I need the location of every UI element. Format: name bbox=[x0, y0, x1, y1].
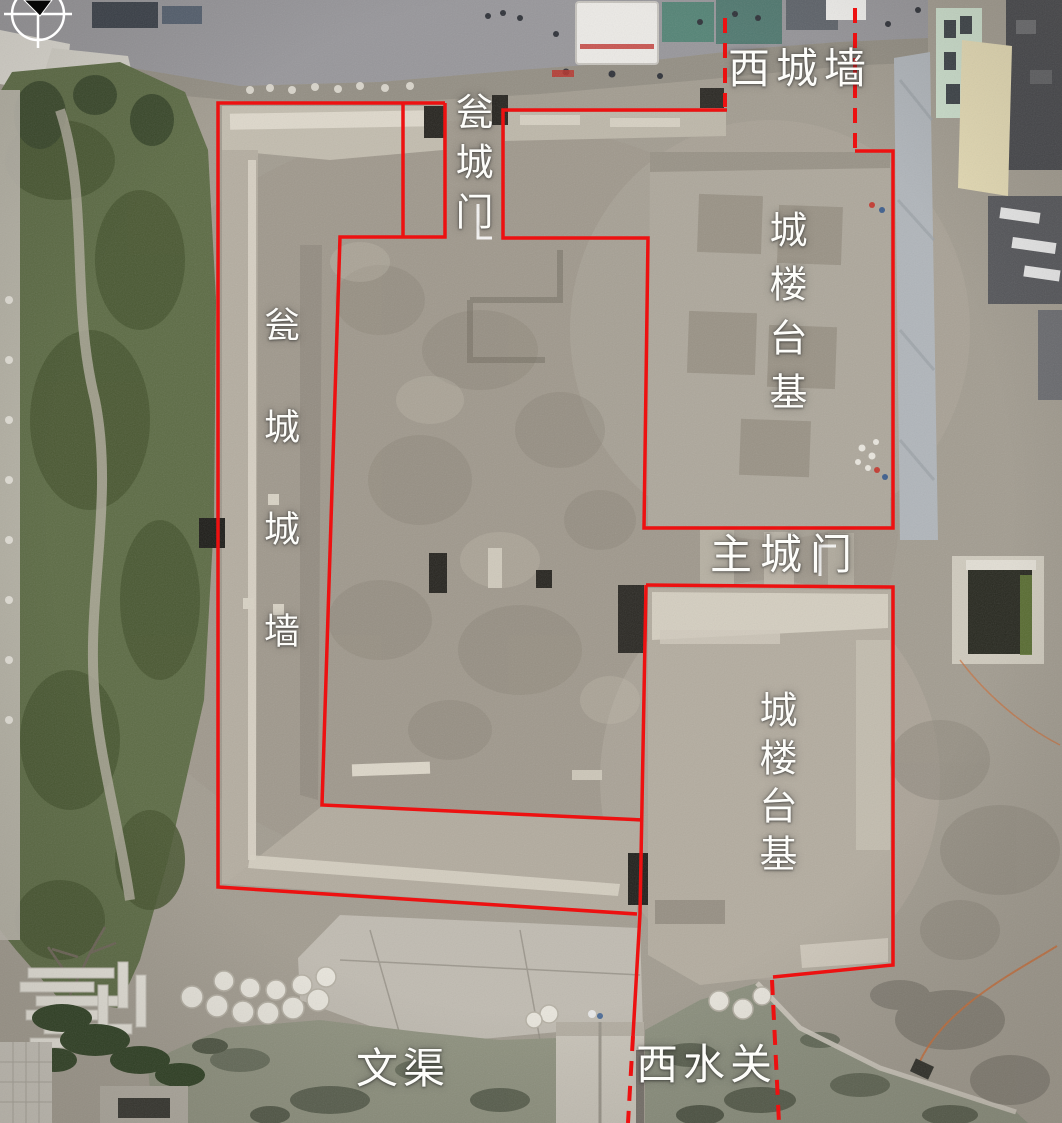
label-west-water-gate: 西水关 bbox=[636, 1044, 777, 1086]
label-gate-tower-platform-upper: 城楼台基 bbox=[766, 210, 804, 426]
label-gate-tower-platform-lower: 城楼台基 bbox=[756, 690, 794, 882]
figure-aerial-excavation: 西城墙 瓮城门 城楼台基 瓮城城墙 主城门 城楼台基 文渠 西水关 bbox=[0, 0, 1062, 1123]
aerial-photo bbox=[0, 0, 1062, 1123]
label-barbican-gate: 瓮城门 bbox=[452, 92, 490, 242]
label-wen-canal: 文渠 bbox=[356, 1048, 450, 1090]
label-west-city-wall: 西城墙 bbox=[728, 48, 872, 90]
vignette bbox=[0, 0, 1062, 1123]
label-main-city-gate: 主城门 bbox=[710, 534, 860, 576]
label-barbican-city-wall: 瓮城城墙 bbox=[260, 306, 296, 714]
